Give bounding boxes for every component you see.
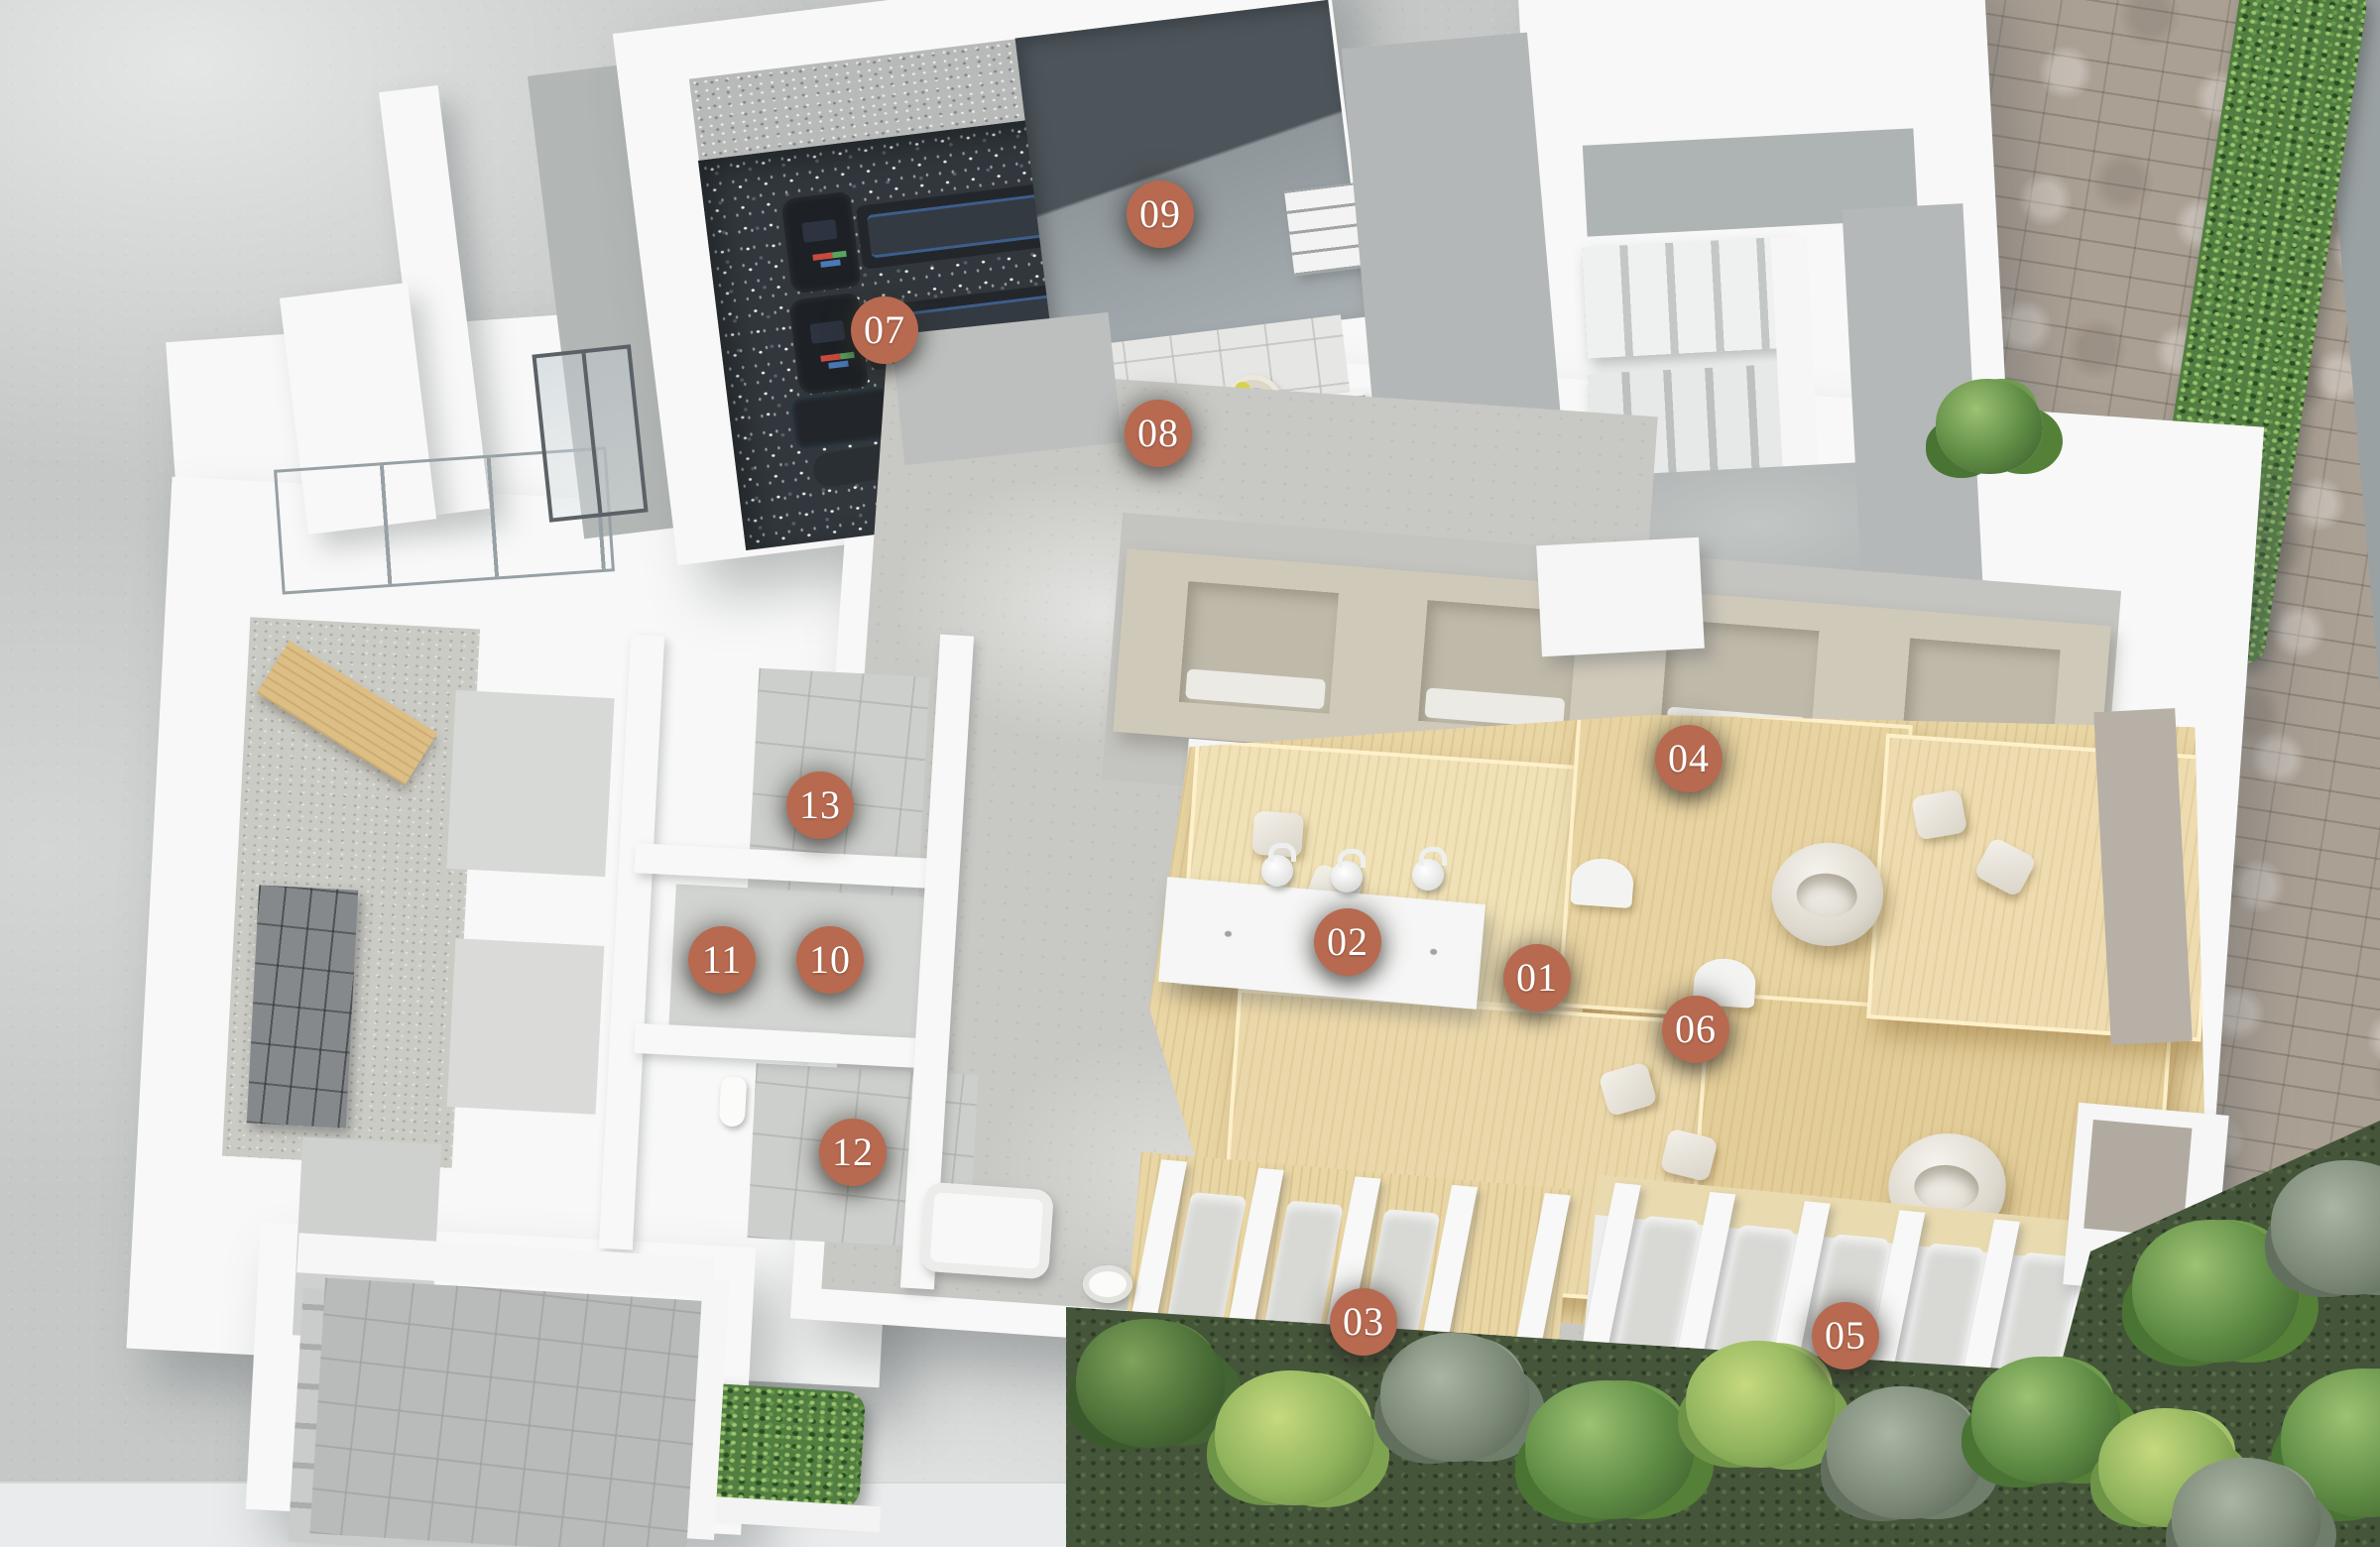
marker-label: 05 [1825, 1316, 1866, 1356]
marker-label: 07 [864, 310, 905, 350]
marker-label: 01 [1516, 958, 1558, 998]
marker-13[interactable]: 13 [786, 772, 854, 839]
marker-11[interactable]: 11 [688, 926, 756, 994]
marker-label: 12 [832, 1132, 874, 1172]
floor-plan-render: 01 02 03 04 05 06 07 08 09 10 11 12 13 [0, 0, 2380, 1547]
marker-label: 13 [799, 785, 841, 825]
marker-10[interactable]: 10 [796, 926, 864, 994]
marker-07[interactable]: 07 [851, 297, 918, 364]
marker-label: 11 [702, 940, 743, 980]
marker-01[interactable]: 01 [1503, 944, 1571, 1011]
marker-02[interactable]: 02 [1314, 908, 1381, 976]
marker-label: 06 [1675, 1010, 1717, 1049]
marker-label: 09 [1139, 194, 1181, 234]
markers-layer: 01 02 03 04 05 06 07 08 09 10 11 12 13 [0, 0, 2380, 1547]
marker-03[interactable]: 03 [1330, 1288, 1397, 1356]
marker-label: 10 [809, 940, 851, 980]
marker-05[interactable]: 05 [1812, 1302, 1879, 1369]
marker-08[interactable]: 08 [1125, 400, 1192, 467]
marker-label: 08 [1137, 414, 1179, 453]
marker-12[interactable]: 12 [819, 1119, 887, 1186]
marker-label: 02 [1327, 922, 1368, 962]
marker-04[interactable]: 04 [1655, 725, 1723, 792]
marker-label: 03 [1343, 1302, 1384, 1342]
marker-06[interactable]: 06 [1662, 996, 1729, 1063]
marker-label: 04 [1668, 739, 1710, 778]
marker-09[interactable]: 09 [1127, 180, 1194, 248]
